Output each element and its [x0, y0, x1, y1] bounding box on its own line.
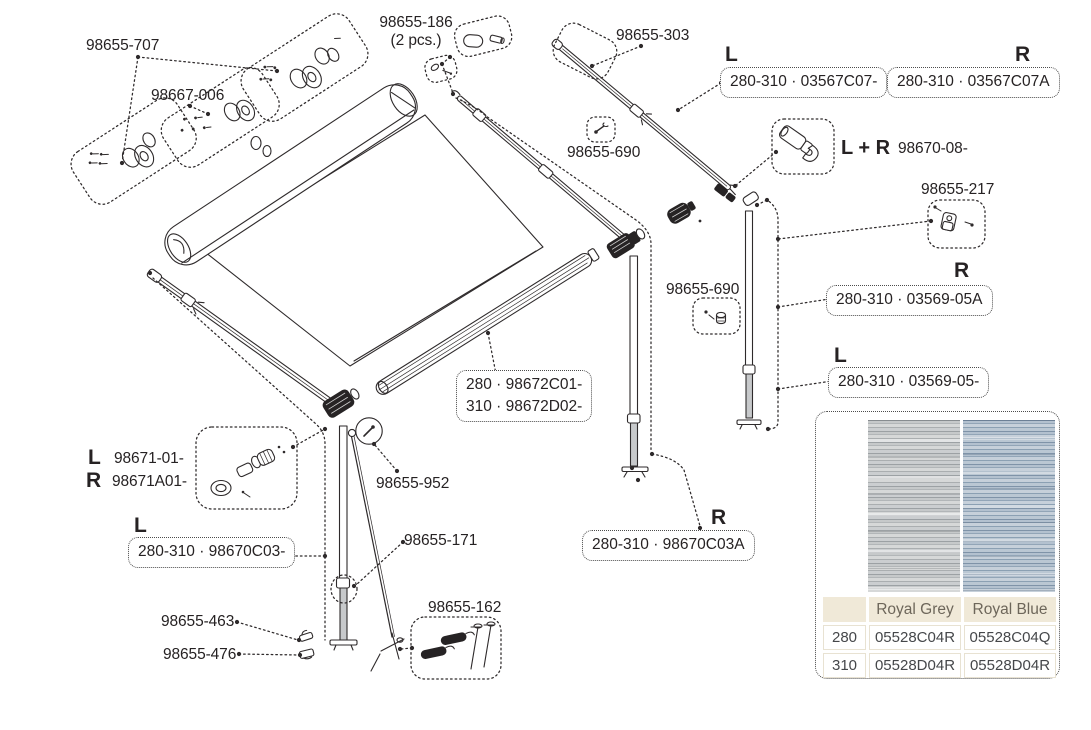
label-98655-463: 98655-463	[161, 613, 234, 631]
side-label-winch-right: R	[86, 470, 101, 491]
clevis-box	[772, 119, 834, 174]
label-98655-952: 98655-952	[376, 475, 449, 493]
fabric-table-header-blue: Royal Blue	[964, 597, 1056, 622]
fabric-table-code-310-grey: 05528D04R	[869, 653, 961, 678]
code-box-leg-left: 280-310 · 98670C03-	[128, 537, 295, 568]
code-box-rafter-left: 280-310 · 03569-05-	[828, 367, 989, 398]
side-label-leg-left: L	[134, 515, 147, 536]
awning-parts-diagram: 98655-707 98667-006 98655-186 (2 pcs.) 9…	[0, 0, 1091, 730]
code-box-front-bar-left: 280-310 · 03567C07-	[720, 67, 887, 98]
side-label-front-bar-right: R	[1015, 44, 1030, 65]
label-98655-303: 98655-303	[616, 27, 689, 45]
side-label-leg-right: R	[711, 507, 726, 528]
code-box-rafter-right: 280-310 · 03569-05A	[826, 285, 993, 316]
label-98655-186: 98655-186 (2 pcs.)	[378, 14, 454, 50]
roller-end-knob-drawing	[665, 198, 698, 226]
label-98655-707: 98655-707	[86, 37, 159, 55]
rear-right-leg-drawing	[714, 183, 761, 429]
fabric-table-code-280-blue: 05528C04Q	[964, 625, 1056, 650]
fabric-selection-panel: Royal Grey Royal Blue 280 05528C04R 0552…	[815, 411, 1060, 679]
code-box-front-bar-right: 280-310 · 03567C07A	[887, 67, 1060, 98]
fabric-table-size-310: 310	[823, 653, 866, 678]
royal-grey-fabric-swatch	[868, 420, 960, 592]
winch-kit-box	[196, 427, 297, 509]
label-98655-186-qty: (2 pcs.)	[391, 32, 442, 49]
side-label-rafter-left: L	[834, 345, 847, 366]
side-label-winch-left: L	[88, 447, 101, 468]
label-98655-186-number: 98655-186	[379, 14, 452, 31]
label-98655-217: 98655-217	[921, 181, 994, 199]
fabric-table-corner-cell	[823, 597, 866, 622]
screw-kit-box-1	[587, 117, 615, 142]
royal-blue-fabric-swatch	[963, 420, 1055, 592]
side-label-rafter-right: R	[954, 260, 969, 281]
front-right-leg-drawing	[605, 224, 648, 477]
fabric-table-header-grey: Royal Grey	[869, 597, 961, 622]
label-98670-08: 98670-08-	[898, 140, 968, 158]
label-98655-476: 98655-476	[163, 646, 236, 664]
label-98655-690-upper: 98655-690	[567, 144, 640, 162]
wall-bracket-box	[928, 200, 985, 248]
label-98655-162: 98655-162	[428, 599, 501, 617]
code-box-leg-right: 280-310 · 98670C03A	[582, 530, 755, 561]
left-leg-drawing	[321, 384, 363, 650]
screw-kit-box-2	[693, 298, 740, 334]
fabric-code-table: Royal Grey Royal Blue 280 05528C04R 0552…	[823, 597, 1056, 678]
label-98655-171: 98655-171	[404, 532, 477, 550]
code-roller-280: 280 · 98672C01-	[466, 374, 582, 396]
label-98667-006: 98667-006	[151, 87, 224, 105]
fabric-panel-drawing	[205, 115, 543, 366]
code-roller-310: 310 · 98672D02-	[466, 396, 582, 418]
side-label-left-right: L + R	[841, 138, 890, 158]
fabric-table-code-310-blue: 05528D04R	[964, 653, 1056, 678]
side-label-front-bar-left: L	[725, 44, 738, 65]
fabric-table-code-280-grey: 05528C04R	[869, 625, 961, 650]
label-98671A01: 98671A01-	[112, 473, 187, 491]
label-98655-690-lower: 98655-690	[666, 281, 739, 299]
tension-rod-drawing	[351, 434, 404, 672]
code-box-roller-tube: 280 · 98672C01- 310 · 98672D02-	[456, 370, 592, 422]
detail-magnifier-drawing	[348, 418, 382, 444]
tiedown-kit-box	[411, 617, 501, 679]
fabric-table-size-280: 280	[823, 625, 866, 650]
label-98671-01: 98671-01-	[114, 450, 184, 468]
knob-kit-box-b	[423, 54, 459, 85]
knob-kit-box-a	[452, 13, 514, 59]
rafter-arm-loose-drawing	[549, 36, 741, 199]
